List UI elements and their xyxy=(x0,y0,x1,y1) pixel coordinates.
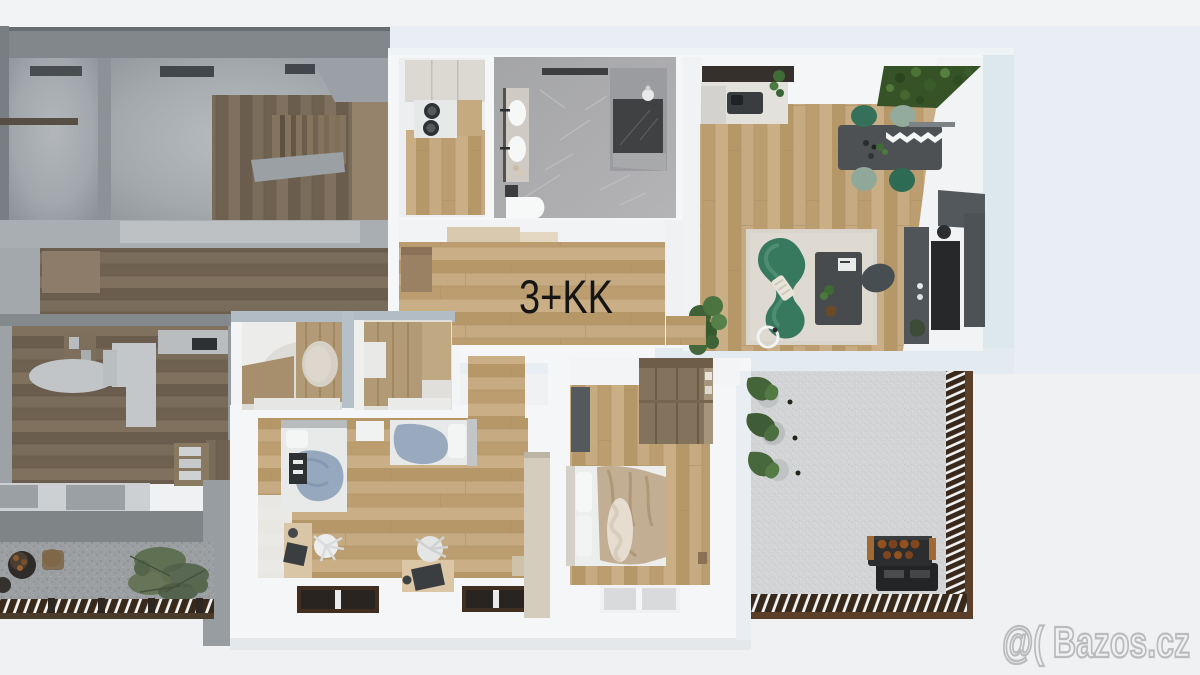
svg-text:@( Bazos.cz: @( Bazos.cz xyxy=(1002,618,1190,667)
svg-text:3+KK: 3+KK xyxy=(519,270,613,323)
